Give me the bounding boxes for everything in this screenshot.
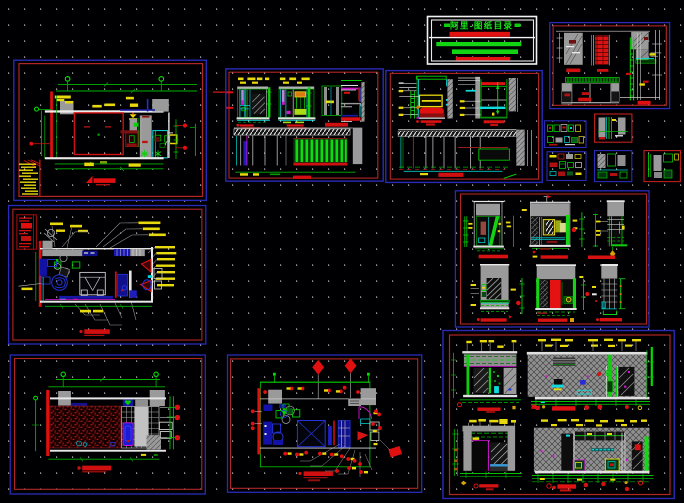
- svg-text:阿里-图纸目录: 阿里-图纸目录: [450, 21, 512, 31]
